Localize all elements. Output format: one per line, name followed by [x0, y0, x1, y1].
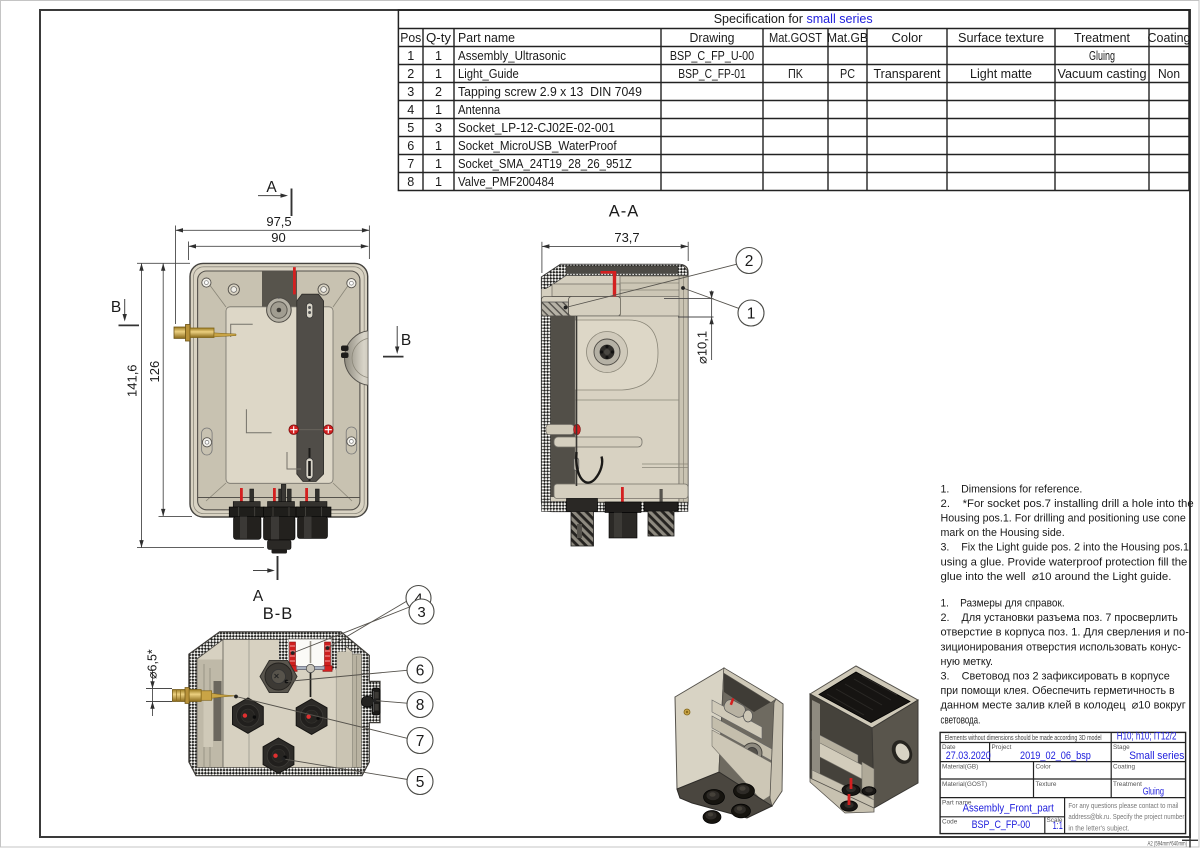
- svg-text:Stage: Stage: [1113, 744, 1130, 751]
- svg-text:3: 3: [435, 121, 442, 135]
- svg-text:Gluing: Gluing: [1143, 785, 1164, 797]
- svg-text:BSP_C_FP-00: BSP_C_FP-00: [972, 819, 1031, 831]
- svg-text:Tapping screw 2.9 x 13 DIN 70: Tapping screw 2.9 x 13 DIN 7049: [458, 85, 642, 99]
- svg-text:A: A: [266, 179, 277, 196]
- svg-text:B-B: B-B: [263, 605, 294, 623]
- svg-text:2. Для установки разъема по: 2. Для установки разъема поз. 7 просверл…: [941, 612, 1178, 624]
- svg-text:5: 5: [407, 121, 414, 135]
- svg-text:Specification for small series: Specification for small series: [714, 11, 873, 26]
- svg-text:A2 (594mm*640mm): A2 (594mm*640mm): [1148, 840, 1188, 847]
- svg-text:1: 1: [435, 175, 442, 189]
- svg-text:73,7: 73,7: [614, 230, 639, 245]
- svg-text:Antenna: Antenna: [458, 103, 500, 117]
- svg-text:mark on the Housing side.: mark on the Housing side.: [941, 527, 1065, 539]
- svg-text:1: 1: [407, 49, 414, 63]
- svg-text:BSP_C_FP_U-00: BSP_C_FP_U-00: [670, 49, 754, 63]
- svg-text:6: 6: [407, 139, 414, 153]
- svg-text:Pos: Pos: [400, 31, 421, 45]
- svg-text:B: B: [111, 299, 121, 316]
- svg-text:Coating: Coating: [1113, 764, 1135, 771]
- svg-text:141,6: 141,6: [125, 364, 140, 397]
- svg-text:Housing pos.1. For drilling an: Housing pos.1. For drilling and position…: [941, 513, 1186, 525]
- svg-text:2. *For socket pos.7 instal: 2. *For socket pos.7 installing drill a …: [941, 498, 1194, 510]
- svg-text:2: 2: [435, 85, 442, 99]
- svg-text:address@bk.ru. Specify the pro: address@bk.ru. Specify the project numbe…: [1068, 812, 1184, 821]
- svg-text:Treatment: Treatment: [1113, 781, 1142, 788]
- svg-text:зиционирования отверстия испол: зиционирования отверстия использовать ко…: [941, 641, 1182, 653]
- svg-text:Material(GOST): Material(GOST): [942, 781, 987, 788]
- svg-text:1: 1: [435, 139, 442, 153]
- svg-text:Drawing: Drawing: [690, 31, 735, 45]
- svg-text:⌀10,1: ⌀10,1: [695, 331, 710, 364]
- svg-text:Transparent: Transparent: [874, 67, 941, 81]
- svg-text:Mat.GB: Mat.GB: [827, 31, 868, 45]
- svg-text:Socket_MicroUSB_WaterProof: Socket_MicroUSB_WaterProof: [458, 139, 617, 153]
- svg-text:27.03.2020: 27.03.2020: [946, 750, 991, 762]
- svg-text:Small series: Small series: [1129, 750, 1185, 762]
- svg-text:1. Размеры для справок.: 1. Размеры для справок.: [941, 598, 1065, 610]
- svg-text:90: 90: [271, 230, 285, 245]
- svg-text:97,5: 97,5: [266, 214, 291, 229]
- svg-text:Valve_PMF200484: Valve_PMF200484: [458, 175, 554, 189]
- svg-text:при помощи клея. Обеспечить ге: при помощи клея. Обеспечить герметичност…: [941, 685, 1175, 697]
- svg-text:ΠK: ΠK: [788, 67, 804, 81]
- svg-text:using a glue. Provide waterpro: using a glue. Provide waterproof protect…: [941, 556, 1188, 568]
- svg-text:Part name: Part name: [458, 31, 515, 45]
- svg-text:Light matte: Light matte: [970, 67, 1032, 81]
- svg-text:Color: Color: [1036, 764, 1052, 771]
- svg-text:8: 8: [407, 175, 414, 189]
- svg-text:данном месте залив клей в коло: данном месте залив клей в колодец ⌀10 во…: [941, 700, 1186, 712]
- svg-text:Material(GB): Material(GB): [942, 764, 978, 771]
- svg-text:Assembly_Front_part: Assembly_Front_part: [963, 802, 1054, 814]
- svg-text:отверстие в корпуса поз. 1. Дл: отверстие в корпуса поз. 1. Для сверлени…: [941, 627, 1190, 639]
- svg-text:5: 5: [416, 774, 425, 791]
- svg-text:3: 3: [407, 85, 414, 99]
- svg-text:1: 1: [435, 103, 442, 117]
- svg-text:Elements without dimensions sh: Elements without dimensions should be ma…: [945, 733, 1102, 742]
- svg-text:⌀6,5*: ⌀6,5*: [146, 649, 160, 679]
- svg-text:1: 1: [435, 67, 442, 81]
- svg-text:A-A: A-A: [609, 203, 640, 221]
- svg-text:A: A: [253, 588, 264, 605]
- svg-text:2019_02_06_bsp: 2019_02_06_bsp: [1020, 750, 1091, 762]
- svg-text:Socket_LP-12-CJ02E-02-001: Socket_LP-12-CJ02E-02-001: [458, 121, 615, 135]
- svg-text:glue into the well ⌀10 around: glue into the well ⌀10 around the Light …: [941, 571, 1172, 583]
- svg-text:Surface texture: Surface texture: [958, 31, 1044, 45]
- svg-text:6: 6: [416, 662, 425, 679]
- svg-text:7: 7: [407, 157, 414, 171]
- svg-text:Non: Non: [1158, 67, 1180, 81]
- svg-text:Coating: Coating: [1148, 31, 1191, 45]
- svg-text:Vacuum casting: Vacuum casting: [1058, 67, 1147, 81]
- svg-text:2: 2: [407, 67, 414, 81]
- svg-text:Gluing: Gluing: [1089, 49, 1115, 63]
- svg-text:1. Dimensions for reference: 1. Dimensions for reference.: [941, 483, 1083, 495]
- svg-text:in the letter's subject.: in the letter's subject.: [1068, 823, 1129, 832]
- svg-text:H10; h10; IT12/2: H10; h10; IT12/2: [1117, 730, 1177, 742]
- svg-text:126: 126: [147, 361, 162, 383]
- svg-text:Texture: Texture: [1036, 781, 1057, 788]
- svg-text:Assembly_Ultrasonic: Assembly_Ultrasonic: [458, 49, 566, 63]
- svg-text:Color: Color: [892, 31, 923, 45]
- svg-text:Socket_SMA_24T19_28_26_951Z: Socket_SMA_24T19_28_26_951Z: [458, 157, 632, 171]
- svg-text:Code: Code: [942, 819, 958, 826]
- svg-text:Treatment: Treatment: [1074, 31, 1130, 45]
- svg-text:световода.: световода.: [941, 714, 981, 726]
- svg-text:3. Fix the Light guide pos.: 3. Fix the Light guide pos. 2 into the H…: [941, 542, 1189, 554]
- svg-text:3. Световод поз 2 зафиксиро: 3. Световод поз 2 зафиксировать в корпус…: [941, 671, 1170, 683]
- svg-text:8: 8: [416, 697, 425, 714]
- svg-text:1: 1: [435, 157, 442, 171]
- svg-text:2: 2: [745, 253, 754, 270]
- svg-text:PC: PC: [840, 67, 855, 81]
- svg-text:Light_Guide: Light_Guide: [458, 67, 519, 81]
- svg-text:1: 1: [747, 306, 756, 323]
- svg-text:4: 4: [407, 103, 414, 117]
- svg-text:For any questions please conta: For any questions please contact to mail: [1068, 801, 1178, 810]
- svg-text:BSP_C_FP-01: BSP_C_FP-01: [678, 67, 746, 81]
- svg-text:3: 3: [417, 604, 425, 621]
- svg-text:B: B: [401, 332, 411, 349]
- svg-text:ную метку.: ную метку.: [941, 656, 994, 668]
- svg-text:Q-ty: Q-ty: [426, 31, 452, 45]
- svg-text:Project: Project: [992, 744, 1012, 751]
- svg-text:1:1: 1:1: [1053, 820, 1063, 832]
- svg-text:Mat.GOST: Mat.GOST: [769, 31, 822, 45]
- svg-text:7: 7: [416, 733, 425, 750]
- svg-text:1: 1: [435, 49, 442, 63]
